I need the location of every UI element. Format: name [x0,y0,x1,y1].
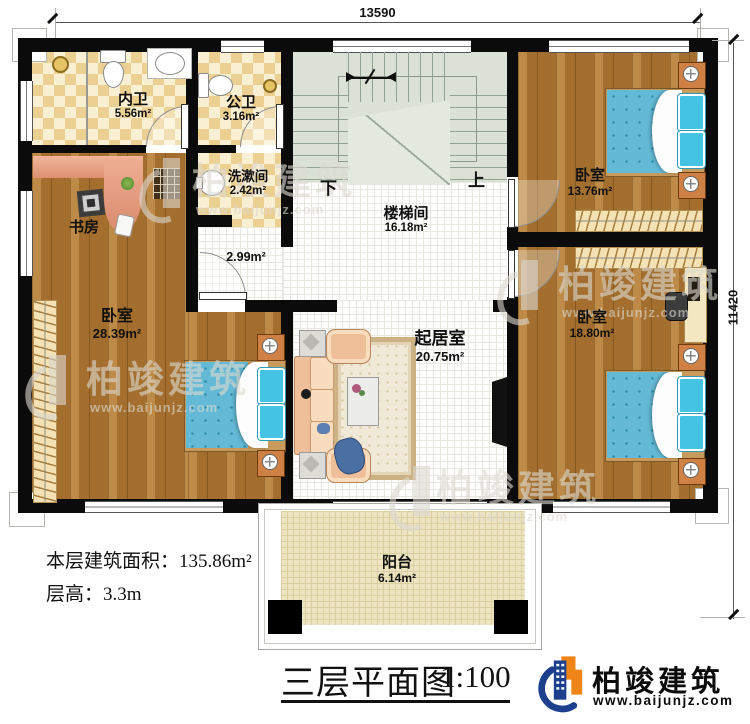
floor-plan-canvas: 柏竣建筑 www.baijunjz.com 柏竣建筑 www.baijunjz.… [0,0,750,724]
computer-monitor-icon [77,189,106,218]
door-leaf-publicbath [276,104,284,149]
room-label-bedroom-left: 卧室 28.39m² [93,308,141,342]
hall-area-label: 2.99m² [226,250,266,264]
watermark-site: www.baijunjz.com [196,203,324,216]
window-left-study [20,191,33,276]
room-name: 书房 [69,219,99,236]
room-name: 卧室 [570,309,615,326]
nightstand-knob-icon [262,338,278,354]
stair-arrow-icon [387,72,396,82]
balcony-column [494,600,528,634]
room-area: 16.18m² [383,222,428,236]
room-name: 卧室 [568,167,613,184]
wall-publicbath-bottom [198,145,236,153]
door-leaf-bedroom-top-right [508,179,515,228]
room-area: 2.42m² [228,185,269,199]
window-left-ensuite [20,81,33,141]
nightstand-knob-icon [683,66,699,82]
balcony-column [268,600,302,634]
window-bottom-bedroom-left [85,501,223,513]
room-name: 内卫 [115,91,151,108]
dimension-line-top [55,22,700,23]
room-label-bedroom-top-right: 卧室 13.76m² [568,167,613,199]
nightstand [257,334,285,361]
sofa-cushion [310,389,334,422]
extension-line [700,617,745,618]
door-leaf-bedroom-left [199,292,247,300]
armchair [326,329,371,364]
drawing-scale: 1:100 [440,659,511,695]
dimension-top-value: 13590 [330,5,425,20]
note-floor-area: 本层建筑面积：135.86m² [46,546,252,573]
wall-bedrooms-left-1 [507,52,518,177]
shower-head-icon [52,56,69,73]
drawing-title: 三层平面图 [281,655,456,704]
nightstand [678,344,706,371]
wardrobe-bedroom-top-right [575,210,703,232]
room-name: 卧室 [93,308,141,326]
bed-pillow [258,368,285,404]
room-label-washroom: 洗漱间 2.42m² [228,169,269,198]
room-name: 公卫 [223,94,259,111]
nightstand-knob-icon [683,176,699,192]
shower-partition [86,52,88,145]
stair-up-label: 上 [468,166,485,191]
sink-basin-icon [155,52,185,75]
extension-line [712,40,744,41]
window-top-bedroom [549,40,689,53]
room-label-bedroom-bottom-right: 卧室 18.80m² [570,309,615,341]
floor-drain-icon [263,79,277,93]
tv-icon [492,377,507,447]
bed-pillow [678,94,705,131]
brand-logo-icon [538,653,588,713]
desk-plant-icon [121,177,134,190]
note-floor-height: 层高：3.3m [46,579,142,606]
bed-pillow [678,131,705,168]
window-top-publicbath [221,40,264,53]
room-label-balcony: 阳台 6.14m² [378,554,416,586]
room-name: 楼梯间 [383,205,428,222]
brand-website: www.baijunjz.com [593,693,734,708]
watermark-logo-icon [500,258,552,322]
stair-down-label: 下 [320,174,337,199]
dimension-right-value: 11420 [726,278,741,338]
bed-pillow [258,404,285,440]
nightstand [678,172,706,199]
nightstand [678,62,706,89]
room-area: 28.39m² [93,326,141,342]
watermark-brand: 柏竣建筑 [86,361,250,398]
room-name: 起居室 [415,329,466,349]
nightstand-knob-icon [262,454,278,470]
room-area: 13.76m² [568,184,613,198]
wall-between-right-bedrooms [507,232,703,247]
room-area: 20.75m² [415,349,466,365]
room-area: 5.56m² [115,108,151,122]
watermark-logo-icon [28,353,80,417]
wall-ensuite-bottom [18,145,146,153]
nightstand-knob-icon [683,462,699,478]
room-area: 3.16m² [223,111,259,125]
watermark-brand: 柏竣建筑 [436,470,600,507]
bed-pillow [678,377,705,414]
nightstand [257,450,285,477]
nightstand [678,458,706,485]
watermark-site: www.baijunjz.com [90,401,218,414]
throw-pillow-icon [317,423,330,434]
stair-arrow-icon [346,72,355,82]
toilet-bowl-icon [208,75,233,96]
coffee-table [347,377,379,426]
room-label-study: 书房 [69,219,99,236]
door-leaf-ensuite [181,104,189,149]
room-area: 6.14m² [378,571,416,585]
floor-lamp-icon [301,389,311,399]
nightstand-knob-icon [683,348,699,364]
wall-bath-stair [281,52,293,247]
watermark-site: www.baijunjz.com [440,510,568,523]
room-name: 洗漱间 [228,169,269,185]
watermark-brand: 柏竣建筑 [558,266,722,303]
room-label-stairwell: 楼梯间 16.18m² [383,205,428,236]
watermark-logo-icon [142,156,194,220]
room-area: 18.80m² [570,326,615,340]
bed-pillow [678,414,705,451]
room-name: 阳台 [378,554,416,571]
table-leaf-icon [359,390,365,396]
room-label-ensuite-bath: 内卫 5.56m² [115,91,151,122]
room-label-living: 起居室 20.75m² [415,329,466,364]
room-label-public-bath: 公卫 3.16m² [223,94,259,125]
title-underline [281,700,510,703]
